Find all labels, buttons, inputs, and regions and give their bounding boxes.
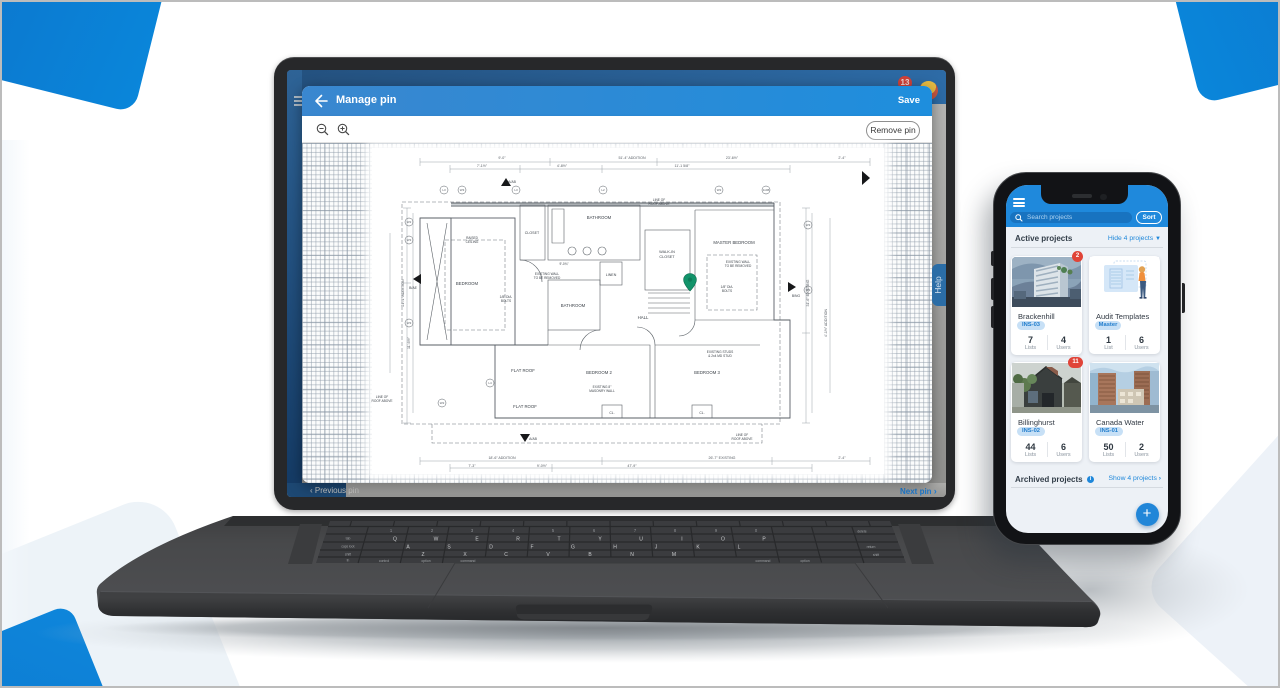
svg-text:FLAT ROOF: FLAT ROOF <box>511 368 535 373</box>
svg-text:BATHROOM: BATHROOM <box>561 303 586 308</box>
svg-text:D: D <box>489 544 493 550</box>
svg-text:CLOSET: CLOSET <box>525 231 540 235</box>
svg-text:BATHROOM: BATHROOM <box>587 215 612 220</box>
svg-text:CEILING: CEILING <box>466 240 479 244</box>
svg-text:ROOF ABOVE: ROOF ABOVE <box>372 399 393 403</box>
svg-text:T: T <box>557 536 560 542</box>
svg-text:W3: W3 <box>407 238 412 242</box>
svg-text:TO BE REMOVED: TO BE REMOVED <box>534 276 561 280</box>
svg-text:H: H <box>613 544 617 550</box>
svg-text:23'-6½": 23'-6½" <box>726 156 739 160</box>
svg-text:2'-4": 2'-4" <box>838 456 846 460</box>
svg-text:CL.: CL. <box>699 411 704 415</box>
svg-text:CLOSET: CLOSET <box>659 255 675 259</box>
svg-text:BEDROOM: BEDROOM <box>456 281 479 286</box>
svg-text:caps lock: caps lock <box>341 545 355 549</box>
svg-text:U: U <box>639 536 643 542</box>
svg-text:9'-0½": 9'-0½" <box>537 464 548 468</box>
svg-text:MASTER BEDROOM: MASTER BEDROOM <box>713 240 755 245</box>
svg-text:fn: fn <box>347 559 350 563</box>
svg-text:shift: shift <box>345 553 351 557</box>
svg-text:18'-6" ADDITION: 18'-6" ADDITION <box>488 456 516 460</box>
svg-text:9'-0¾": 9'-0¾" <box>559 262 568 266</box>
svg-text:F: F <box>530 544 533 550</box>
svg-text:W3: W3 <box>806 223 811 227</box>
svg-text:L4: L4 <box>488 381 492 385</box>
svg-text:ROOF ABOVE: ROOF ABOVE <box>732 437 753 441</box>
svg-text:WALK-IN: WALK-IN <box>659 250 675 254</box>
svg-text:BEDROOM 3: BEDROOM 3 <box>694 370 720 375</box>
svg-text:B/AE: B/AE <box>409 286 417 290</box>
svg-text:L2: L2 <box>601 188 605 192</box>
svg-text:Help: Help <box>933 276 943 294</box>
svg-text:Q: Q <box>393 536 397 542</box>
svg-text:control: control <box>379 559 389 563</box>
svg-text:9'-0": 9'-0" <box>498 156 506 160</box>
svg-text:7'-3": 7'-3" <box>468 464 476 468</box>
svg-text:G: G <box>571 544 575 550</box>
svg-text:MASONRY WALL: MASONRY WALL <box>589 389 615 393</box>
svg-text:L3: L3 <box>514 188 518 192</box>
svg-text:& 2x4 MD STUD: & 2x4 MD STUD <box>708 354 732 358</box>
svg-text:BOLTS: BOLTS <box>722 289 732 293</box>
svg-text:shift: shift <box>873 553 879 557</box>
svg-text:option: option <box>421 559 430 563</box>
svg-text:W3: W3 <box>407 321 412 325</box>
svg-text:7'-1½": 7'-1½" <box>477 164 488 168</box>
svg-text:TO BE REMOVED: TO BE REMOVED <box>725 264 752 268</box>
svg-text:47'-9": 47'-9" <box>627 464 637 468</box>
svg-text:1/AB: 1/AB <box>763 188 770 192</box>
svg-text:W3: W3 <box>460 188 465 192</box>
svg-text:C: C <box>504 552 508 558</box>
svg-text:21'-1" ADDITION: 21'-1" ADDITION <box>401 279 405 307</box>
svg-text:command: command <box>461 559 476 563</box>
svg-text:N: N <box>630 552 634 558</box>
svg-text:L3: L3 <box>442 188 446 192</box>
svg-text:L: L <box>738 544 741 550</box>
svg-text:LINEN: LINEN <box>606 273 617 277</box>
svg-text:HALL: HALL <box>638 315 649 320</box>
svg-text:tab: tab <box>346 537 351 541</box>
svg-text:31'-6" EXISTING: 31'-6" EXISTING <box>806 279 810 306</box>
svg-text:W2: W2 <box>407 220 412 224</box>
svg-text:W3: W3 <box>806 288 811 292</box>
svg-text:26'-7" EXISTING: 26'-7" EXISTING <box>709 456 736 460</box>
svg-text:51'-4" ADDITION: 51'-4" ADDITION <box>618 156 646 160</box>
svg-text:I: I <box>681 536 682 542</box>
svg-text:W: W <box>434 536 439 542</box>
svg-text:command: command <box>756 559 771 563</box>
svg-text:FLAT ROOF: FLAT ROOF <box>513 404 537 409</box>
svg-text:11'-6½": 11'-6½" <box>407 336 411 349</box>
svg-text:A/AB: A/AB <box>529 437 537 441</box>
svg-text:4'-1½" ADDITION: 4'-1½" ADDITION <box>824 309 828 338</box>
svg-text:BEDROOM 2: BEDROOM 2 <box>586 370 612 375</box>
svg-text:Z: Z <box>421 552 424 558</box>
svg-text:W2: W2 <box>717 188 722 192</box>
svg-text:return: return <box>867 545 876 549</box>
svg-text:11'-1 5/8": 11'-1 5/8" <box>675 164 691 168</box>
svg-text:W2: W2 <box>440 401 445 405</box>
svg-text:A/AB: A/AB <box>508 180 516 184</box>
svg-text:CL.: CL. <box>609 411 614 415</box>
svg-text:R: R <box>516 536 520 542</box>
svg-text:4'-8½": 4'-8½" <box>557 164 568 168</box>
svg-text:B/NG: B/NG <box>792 294 801 298</box>
svg-text:ROOF ABOVE: ROOF ABOVE <box>649 202 670 206</box>
svg-text:2'-4": 2'-4" <box>838 156 846 160</box>
svg-text:M: M <box>672 552 676 558</box>
svg-text:option: option <box>800 559 809 563</box>
svg-text:O: O <box>721 536 725 542</box>
svg-text:BOLTS: BOLTS <box>501 299 511 303</box>
svg-text:delete: delete <box>857 530 866 534</box>
